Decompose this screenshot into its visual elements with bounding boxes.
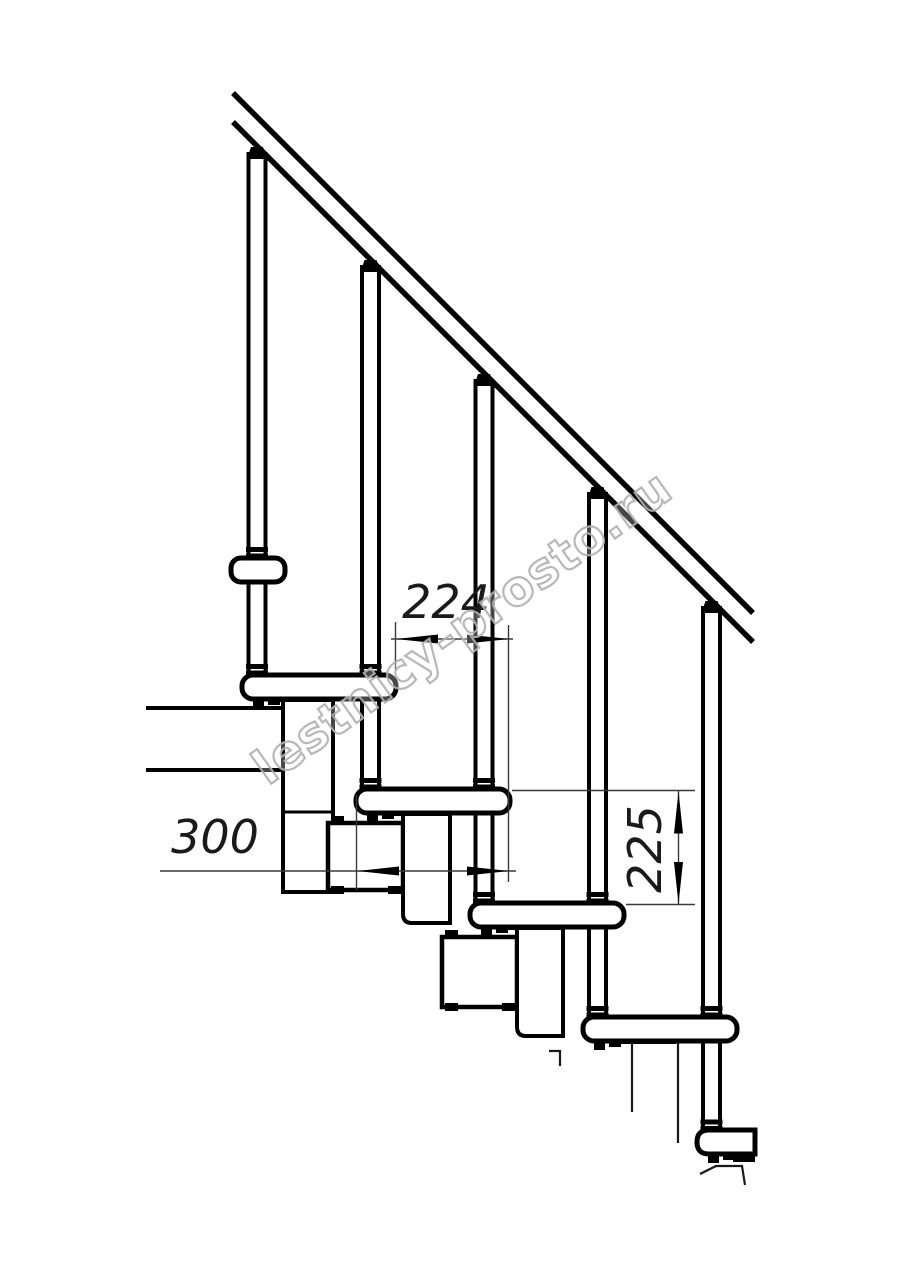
arrow-down-icon xyxy=(674,862,683,904)
dimension-rise: 225 xyxy=(618,791,683,904)
module-partial-6 xyxy=(700,1166,745,1185)
tread-1 xyxy=(231,558,285,582)
module-tube-3 xyxy=(403,814,450,923)
tread-5 xyxy=(583,1017,737,1041)
drawing-page: 224 300 225 lestnicy-prosto.ru xyxy=(0,0,914,1280)
dim-label-rise: 225 xyxy=(618,805,672,893)
baluster-4 xyxy=(589,492,606,1017)
baluster-1 xyxy=(249,152,266,675)
staircase-drawing: 224 300 225 lestnicy-prosto.ru xyxy=(0,0,914,1280)
baluster-5 xyxy=(703,606,720,1130)
tread-3 xyxy=(356,789,510,813)
module-partial-5 xyxy=(549,1041,678,1143)
watermark-text: lestnicy-prosto.ru xyxy=(242,460,682,796)
module-sleeve-3 xyxy=(328,816,403,894)
tread-6 xyxy=(697,1130,755,1154)
arrow-up-icon xyxy=(674,792,683,834)
connector-tread-6 xyxy=(708,1152,755,1163)
module-tube-4 xyxy=(517,927,563,1036)
module-sleeve-4 xyxy=(442,930,517,1011)
arrow-right-icon xyxy=(467,867,509,876)
module-chain xyxy=(283,699,745,1185)
dim-label-tread-depth: 300 xyxy=(171,810,259,864)
tread-4 xyxy=(470,903,624,927)
